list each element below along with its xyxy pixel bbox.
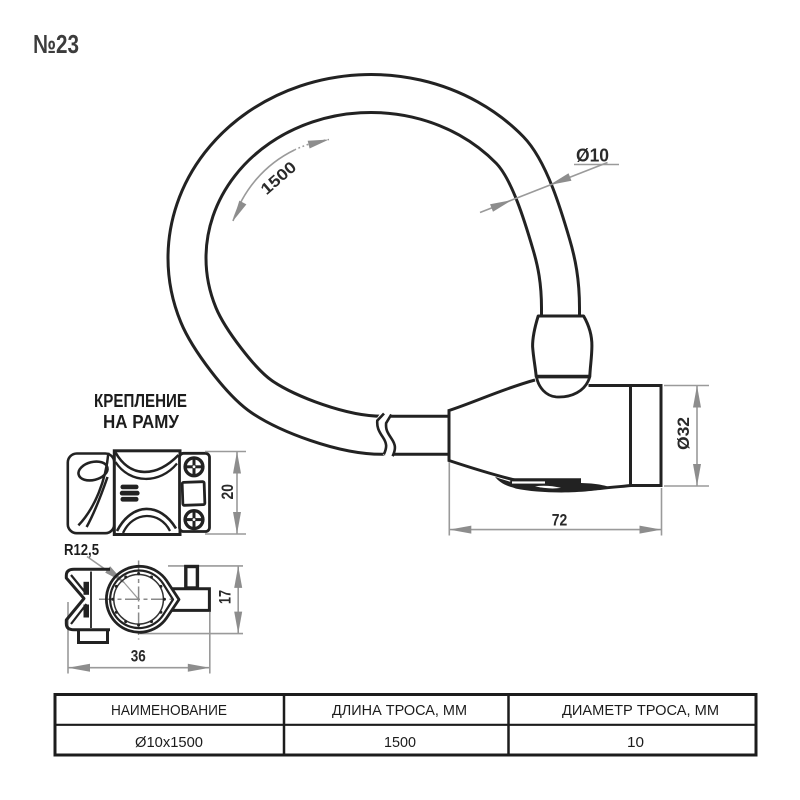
svg-text:10: 10 bbox=[627, 734, 644, 751]
svg-text:ДЛИНА ТРОСА, ММ: ДЛИНА ТРОСА, ММ bbox=[332, 702, 467, 719]
svg-text:НА РАМУ: НА РАМУ bbox=[103, 412, 180, 432]
svg-text:72: 72 bbox=[552, 511, 568, 530]
svg-text:ДИАМЕТР ТРОСА, ММ: ДИАМЕТР ТРОСА, ММ bbox=[562, 702, 719, 719]
svg-text:1500: 1500 bbox=[384, 734, 416, 751]
svg-text:Ø32: Ø32 bbox=[674, 417, 693, 450]
svg-text:Ø10: Ø10 bbox=[576, 146, 609, 166]
svg-text:№23: №23 bbox=[33, 29, 79, 59]
svg-text:R12,5: R12,5 bbox=[64, 542, 99, 559]
svg-text:НАИМЕНОВАНИЕ: НАИМЕНОВАНИЕ bbox=[111, 702, 227, 719]
svg-text:Ø10x1500: Ø10x1500 bbox=[135, 734, 203, 751]
svg-text:20: 20 bbox=[218, 484, 237, 500]
svg-text:17: 17 bbox=[216, 590, 235, 604]
svg-text:1500: 1500 bbox=[258, 159, 300, 199]
svg-text:36: 36 bbox=[131, 647, 146, 666]
svg-text:КРЕПЛЕНИЕ: КРЕПЛЕНИЕ bbox=[94, 391, 187, 411]
